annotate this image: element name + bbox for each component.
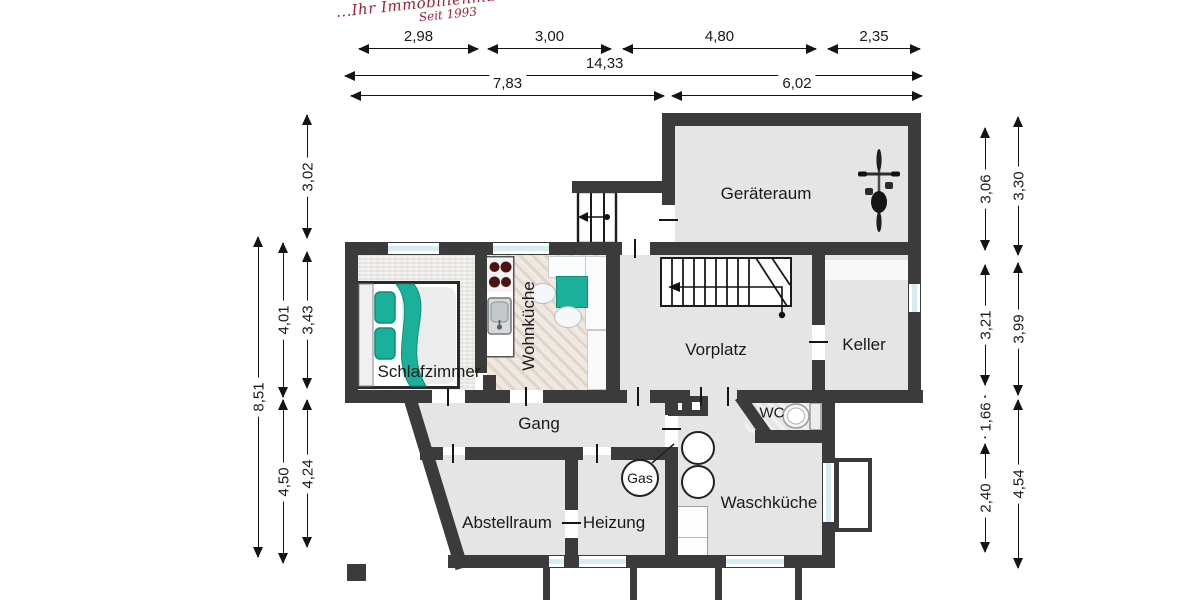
dim-label: 4,50 — [276, 462, 293, 501]
room-label-wohnkueche: Wohnküche — [519, 281, 539, 370]
door-mark — [659, 219, 678, 221]
gas-marker: Gas — [621, 459, 659, 497]
wall-segment — [543, 390, 627, 403]
wall-segment — [812, 390, 923, 403]
wall-segment — [345, 390, 432, 403]
wall-segment — [440, 242, 492, 255]
door-mark — [447, 387, 449, 406]
dim-label: 3,02 — [300, 157, 317, 196]
wall-segment — [543, 568, 550, 600]
door-mark — [562, 522, 581, 524]
wall-segment — [420, 447, 443, 460]
window — [725, 555, 785, 568]
dim-label: 2,98 — [400, 28, 437, 45]
door-mark — [596, 444, 598, 463]
window — [578, 555, 627, 568]
dim-left-5: 4,50 — [283, 400, 284, 563]
room-label-heizung: Heizung — [583, 513, 645, 533]
dim-left-2: 3,43 — [307, 252, 308, 388]
room-label-gang: Gang — [518, 414, 560, 434]
wall-segment — [908, 113, 921, 255]
dim-total-width: 14,33 — [345, 75, 922, 76]
wall-segment — [572, 181, 662, 193]
dim-label: 3,06 — [978, 169, 995, 208]
room-label-waschkueche: Waschküche — [721, 493, 818, 513]
dim-label: 6,02 — [778, 75, 815, 92]
dim-right-3: 1,66 — [985, 396, 986, 438]
dim-top-1: 2,98 — [359, 48, 478, 49]
washing-machine-icon — [681, 431, 715, 465]
room-label-vorplatz: Vorplatz — [685, 340, 746, 360]
dim-label: 8,51 — [251, 377, 268, 416]
wall-segment — [795, 568, 802, 600]
dim-right-6: 3,99 — [1018, 263, 1019, 395]
door-mark — [637, 387, 639, 406]
wall-segment — [465, 447, 565, 460]
dim-top-3: 4,80 — [623, 48, 816, 49]
dim-top-2: 3,00 — [488, 48, 611, 49]
exterior-stair-icon — [576, 190, 620, 246]
kitchen-table — [556, 276, 588, 308]
door-mark — [700, 387, 702, 406]
dim-label: 4,80 — [701, 28, 738, 45]
wall-segment — [465, 390, 510, 403]
door-mark — [452, 444, 454, 463]
dim-left-6: 8,51 — [258, 237, 259, 557]
dim-right-7: 4,54 — [1018, 400, 1019, 568]
kitchen-chair — [554, 306, 582, 328]
staircase-icon — [660, 257, 812, 321]
door-mark — [809, 341, 828, 343]
dim-label: 7,83 — [489, 75, 526, 92]
wall-segment — [755, 430, 825, 443]
kitchen-bench — [585, 256, 608, 330]
light-well — [835, 458, 872, 532]
room-label-geraeteraum: Geräteraum — [721, 184, 812, 204]
wall-segment — [812, 360, 825, 390]
wall-segment — [812, 255, 825, 325]
dim-label: 4,01 — [276, 300, 293, 339]
wall-segment — [662, 113, 920, 126]
wall-segment — [627, 555, 725, 568]
dim-label: 2,35 — [855, 28, 892, 45]
wall-segment — [565, 538, 578, 568]
wall-segment — [550, 242, 622, 255]
wall-segment — [448, 555, 548, 568]
door-mark — [727, 387, 729, 406]
wall-segment — [908, 255, 921, 283]
kitchen-stove-sink-icon — [485, 256, 515, 358]
bicycle-icon — [858, 146, 900, 236]
floorplan-canvas: ...Ihr Immobilienmakler Seit 1993 2,98 3… — [0, 0, 1200, 600]
dim-label: 3,00 — [531, 28, 568, 45]
toilet-icon — [780, 400, 824, 434]
wall-segment — [662, 113, 675, 205]
dim-label: 4,54 — [1011, 464, 1028, 503]
dim-label: 2,40 — [978, 478, 995, 517]
room-label-keller: Keller — [842, 335, 885, 355]
wall-segment — [715, 568, 722, 600]
wall-segment — [483, 375, 496, 390]
door-mark — [525, 387, 527, 406]
window — [822, 462, 835, 523]
kitchen-sideboard — [587, 330, 608, 390]
wall-segment — [630, 568, 637, 600]
wall-segment — [578, 447, 583, 460]
dim-left-1: 3,02 — [307, 115, 308, 238]
dim-label: 4,24 — [300, 454, 317, 493]
wall-segment — [475, 255, 487, 373]
door-mark — [662, 428, 681, 430]
pillar — [347, 564, 366, 581]
room-label-schlafzimmer: Schlafzimmer — [378, 362, 481, 382]
dim-left-3: 4,24 — [307, 400, 308, 547]
dim-label: 1,66 — [978, 397, 995, 436]
dim-label: 3,99 — [1011, 309, 1028, 348]
wall-segment — [665, 403, 678, 415]
wall-segment — [650, 242, 920, 255]
wall-segment — [785, 555, 835, 568]
wall-segment — [650, 390, 690, 403]
keller-recess — [825, 260, 908, 280]
dim-label: 3,43 — [300, 300, 317, 339]
dim-label: 14,33 — [582, 55, 628, 72]
wall-segment — [565, 447, 578, 510]
wall-segment — [345, 242, 358, 403]
window — [492, 242, 550, 255]
dim-label: 3,30 — [1011, 166, 1028, 205]
dim-right-5: 3,30 — [1018, 117, 1019, 255]
wall-segment — [908, 313, 921, 403]
dim-mid-1: 7,83 — [351, 95, 664, 96]
dim-top-4: 2,35 — [828, 48, 920, 49]
room-label-wc: WC — [760, 405, 785, 422]
door-mark — [634, 239, 636, 258]
washing-machine-icon — [681, 465, 715, 499]
dim-right-4: 2,40 — [985, 444, 986, 552]
wall-segment — [606, 255, 620, 390]
dim-mid-2: 6,02 — [672, 95, 922, 96]
dim-label: 3,21 — [978, 305, 995, 344]
window — [387, 242, 440, 255]
dim-right-1: 3,06 — [985, 128, 986, 250]
dim-left-4: 4,01 — [283, 243, 284, 397]
room-label-abstellraum: Abstellraum — [462, 513, 552, 533]
wall-segment — [665, 447, 678, 568]
window — [548, 555, 565, 568]
gas-label: Gas — [627, 470, 653, 486]
gas-pointer-line — [650, 442, 676, 464]
window — [908, 283, 921, 313]
dim-right-2: 3,21 — [985, 265, 986, 385]
